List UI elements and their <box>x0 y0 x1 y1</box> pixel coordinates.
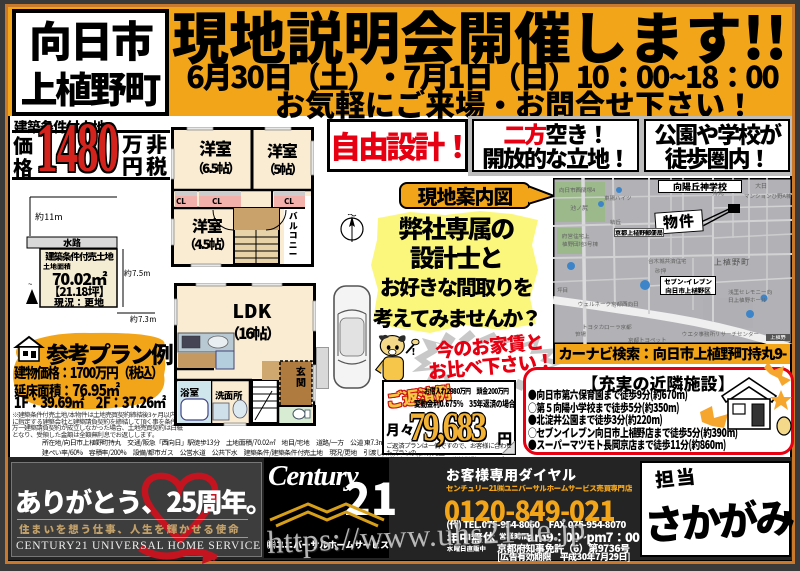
svg-text:~: ~ <box>28 279 33 290</box>
